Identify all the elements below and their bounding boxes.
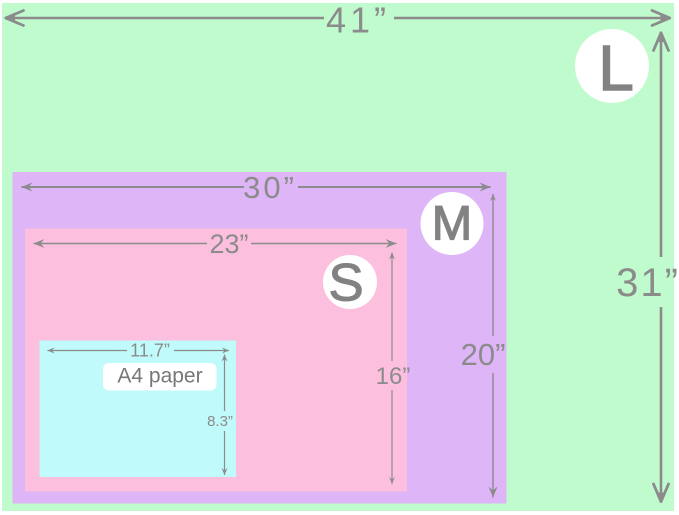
svg-text:L: L xyxy=(598,32,634,104)
svg-text:16”: 16” xyxy=(376,363,411,390)
svg-text:31”: 31” xyxy=(616,261,679,305)
svg-text:23”: 23” xyxy=(209,229,248,259)
svg-text:S: S xyxy=(328,254,363,313)
svg-text:A4 paper: A4 paper xyxy=(117,365,202,388)
svg-text:11.7”: 11.7” xyxy=(130,341,170,361)
svg-text:20”: 20” xyxy=(461,337,506,372)
svg-text:M: M xyxy=(432,197,472,251)
svg-text:41”: 41” xyxy=(326,0,390,41)
svg-text:30”: 30” xyxy=(243,170,297,205)
svg-text:8.3”: 8.3” xyxy=(207,413,233,430)
